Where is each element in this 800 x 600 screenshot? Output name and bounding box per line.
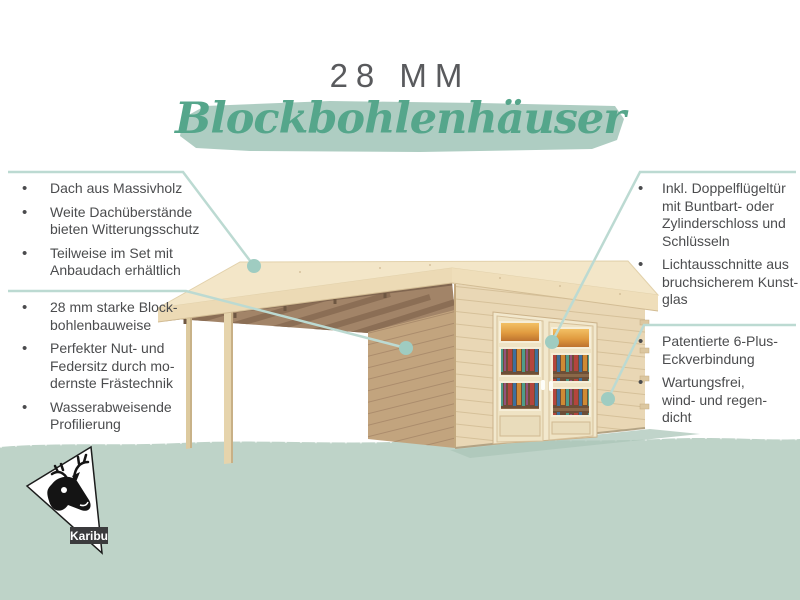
bullet-icon: • — [634, 374, 662, 427]
door-glass-pane — [500, 322, 540, 342]
cabin-side-wall — [368, 310, 455, 448]
feature-text: Wartungsfrei, wind- und regen- dicht — [662, 374, 767, 427]
door-glass-pane — [500, 382, 540, 410]
feature-text: Lichtausschnitte aus bruchsicherem Kunst… — [662, 256, 798, 309]
logo-wordmark: Karibu — [70, 529, 108, 543]
feature-item: • Teilweise im Set mit Anbaudach erhältl… — [12, 245, 204, 280]
door-glass-pane — [552, 388, 590, 416]
bullet-icon: • — [12, 180, 50, 198]
callout-dot — [545, 335, 559, 349]
page-subtitle-script: Blockbohlenhäuser — [0, 94, 800, 144]
canopy-post-front — [224, 295, 233, 464]
feature-list-left-top: • Dach aus Massivholz • Weite Dachüberst… — [12, 180, 204, 286]
feature-text: Weite Dachüberstände bieten Witterungssc… — [50, 204, 199, 239]
door-handle — [541, 380, 545, 390]
callout-dot — [399, 341, 413, 355]
feature-item: • Patentierte 6-Plus- Eckverbindung — [634, 333, 800, 368]
ground — [0, 438, 800, 600]
feature-item: • Lichtausschnitte aus bruchsicherem Kun… — [634, 256, 800, 309]
garden-house — [150, 261, 658, 464]
feature-list-right-bottom: • Patentierte 6-Plus- Eckverbindung • Wa… — [634, 333, 800, 433]
feature-item: • Wasserabweisende Profilierung — [12, 399, 204, 434]
feature-text: Patentierte 6-Plus- Eckverbindung — [662, 333, 778, 368]
bullet-icon: • — [12, 204, 50, 239]
feature-text: 28 mm starke Block- bohlenbauweise — [50, 299, 178, 334]
feature-text: Inkl. Doppelflügeltür mit Buntbart- oder… — [662, 180, 786, 250]
callout-dot — [247, 259, 261, 273]
feature-item: • Inkl. Doppelflügeltür mit Buntbart- od… — [634, 180, 800, 250]
bullet-icon: • — [12, 299, 50, 334]
door-glass-pane — [552, 354, 590, 382]
bullet-icon: • — [634, 333, 662, 368]
bullet-icon: • — [12, 245, 50, 280]
feature-list-right-top: • Inkl. Doppelflügeltür mit Buntbart- od… — [634, 180, 800, 315]
door-panel — [552, 422, 590, 434]
feature-item: • Perfekter Nut- und Federsitz durch mo-… — [12, 340, 204, 393]
feature-text: Teilweise im Set mit Anbaudach erhältlic… — [50, 245, 181, 280]
feature-text: Wasserabweisende Profilierung — [50, 399, 172, 434]
double-door — [493, 312, 597, 444]
page-title: 28 MM — [0, 57, 800, 95]
door-glass-pane — [500, 348, 540, 376]
bullet-icon: • — [634, 256, 662, 309]
feature-list-left-bottom: • 28 mm starke Block- bohlenbauweise • P… — [12, 299, 204, 440]
door-handle — [549, 381, 553, 391]
bullet-icon: • — [12, 399, 50, 434]
feature-item: • Weite Dachüberstände bieten Witterungs… — [12, 204, 204, 239]
door-panel — [500, 416, 540, 436]
feature-item: • Wartungsfrei, wind- und regen- dicht — [634, 374, 800, 427]
feature-text: Dach aus Massivholz — [50, 180, 182, 198]
bullet-icon: • — [12, 340, 50, 393]
feature-text: Perfekter Nut- und Federsitz durch mo- d… — [50, 340, 174, 393]
feature-item: • Dach aus Massivholz — [12, 180, 204, 198]
infographic-canvas: Karibu 28 MM Blockbohlenhäuser • Dach au… — [0, 0, 800, 600]
callout-dot — [601, 392, 615, 406]
bullet-icon: • — [634, 180, 662, 250]
feature-item: • 28 mm starke Block- bohlenbauweise — [12, 299, 204, 334]
